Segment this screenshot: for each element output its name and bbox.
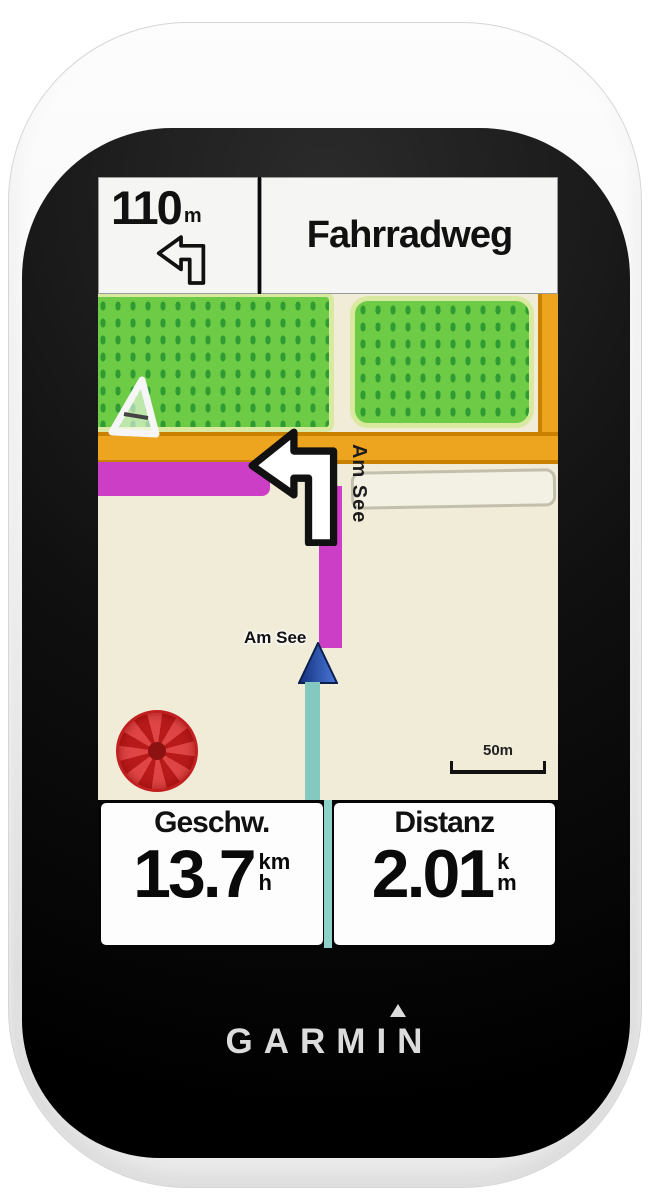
speed-unit: km h xyxy=(259,852,291,894)
garmin-delta-icon xyxy=(390,1004,406,1017)
scale-label: 50m xyxy=(446,742,550,759)
track-line xyxy=(305,682,320,800)
garmin-edge-device: 110 m Fahrradweg xyxy=(0,0,648,1200)
map-feature-icon xyxy=(106,374,168,440)
route-line-horizontal xyxy=(98,462,270,496)
orange-road-vertical xyxy=(538,294,558,446)
distance-label: Distanz xyxy=(394,806,494,840)
side-road xyxy=(351,468,557,510)
map-area[interactable]: Am See Am See 50m xyxy=(98,294,558,800)
data-fields-row: Geschw. 13.7 km h Distanz 2.01 k m xyxy=(98,800,558,948)
turn-left-icon xyxy=(155,234,217,288)
street-banner-label: Fahrradweg xyxy=(307,214,512,257)
navigation-banner[interactable]: 110 m Fahrradweg xyxy=(98,177,558,294)
turn-distance-unit: m xyxy=(184,205,202,228)
street-name-label: Am See xyxy=(347,444,370,523)
position-marker-icon xyxy=(298,642,338,684)
speed-unit-bottom: h xyxy=(259,870,272,895)
distance-value: 2.01 xyxy=(372,840,492,908)
maneuver-turn-arrow-icon xyxy=(248,426,344,546)
poi-red-icon xyxy=(116,710,198,792)
speed-label: Geschw. xyxy=(154,806,269,840)
data-field-distance[interactable]: Distanz 2.01 k m xyxy=(334,803,556,945)
poi-red-center xyxy=(148,742,166,760)
track-line-divider xyxy=(324,800,332,948)
speed-value: 13.7 xyxy=(133,840,253,908)
street-banner[interactable]: Fahrradweg xyxy=(261,177,558,294)
touchscreen[interactable]: 110 m Fahrradweg xyxy=(98,177,558,948)
turn-distance-panel[interactable]: 110 m xyxy=(98,177,258,294)
park-area-right xyxy=(350,296,534,428)
turn-distance-value: 110 xyxy=(111,184,181,231)
data-field-speed[interactable]: Geschw. 13.7 km h xyxy=(101,803,323,945)
scale-bar xyxy=(450,761,546,774)
map-scale: 50m xyxy=(446,742,550,774)
distance-unit: k m xyxy=(497,852,517,894)
distance-unit-bottom: m xyxy=(497,870,517,895)
brand-logo: GARMIN xyxy=(0,1022,648,1062)
